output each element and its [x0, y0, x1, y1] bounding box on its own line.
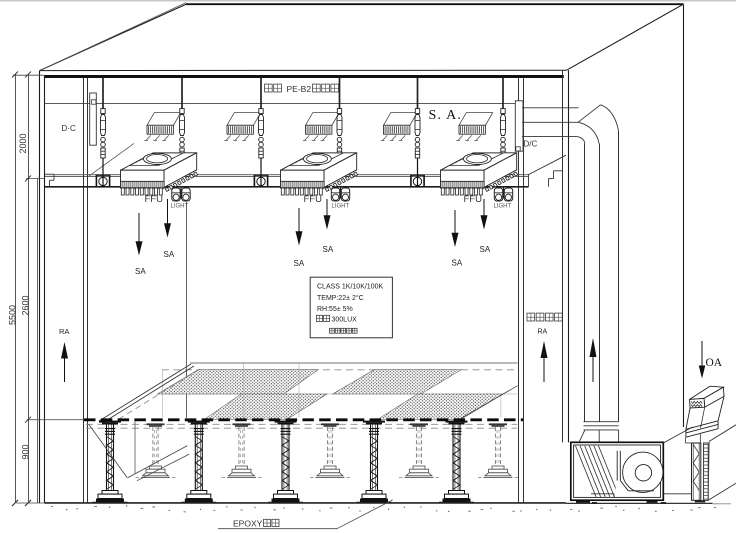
svg-text:RH:55± 5%: RH:55± 5%: [317, 306, 353, 313]
svg-text:900: 900: [21, 444, 31, 459]
svg-text:PE-B2: PE-B2: [287, 84, 312, 94]
svg-text:SA: SA: [452, 259, 463, 268]
svg-text:RA: RA: [59, 327, 69, 336]
svg-text:LIGHT: LIGHT: [332, 204, 350, 210]
svg-text:EPOXY: EPOXY: [233, 519, 263, 529]
svg-text:LIGHT: LIGHT: [494, 204, 512, 210]
svg-text:2000: 2000: [18, 133, 28, 153]
svg-text:D/C: D/C: [524, 140, 538, 149]
svg-text:SA: SA: [294, 259, 305, 268]
svg-text:FFU: FFU: [464, 194, 483, 205]
svg-text:TEMP:22± 2°C: TEMP:22± 2°C: [317, 294, 364, 302]
svg-text:OA: OA: [706, 357, 723, 369]
svg-text:D·C: D·C: [62, 124, 76, 133]
svg-text:SA: SA: [135, 267, 146, 276]
svg-text:FFU: FFU: [304, 194, 323, 205]
svg-text:S. A.: S. A.: [429, 108, 463, 123]
svg-text:FFU: FFU: [145, 194, 164, 205]
svg-text:RA: RA: [538, 329, 548, 336]
svg-text:LIGHT: LIGHT: [171, 204, 189, 210]
svg-text:CLASS 1K/10K/100K: CLASS 1K/10K/100K: [317, 284, 383, 291]
svg-text:SA: SA: [164, 250, 175, 259]
svg-text:SA: SA: [323, 245, 334, 254]
svg-text:SA: SA: [480, 245, 491, 254]
svg-text:300LUX: 300LUX: [332, 317, 358, 324]
svg-text:2600: 2600: [21, 295, 31, 315]
svg-text:5500: 5500: [8, 305, 18, 325]
